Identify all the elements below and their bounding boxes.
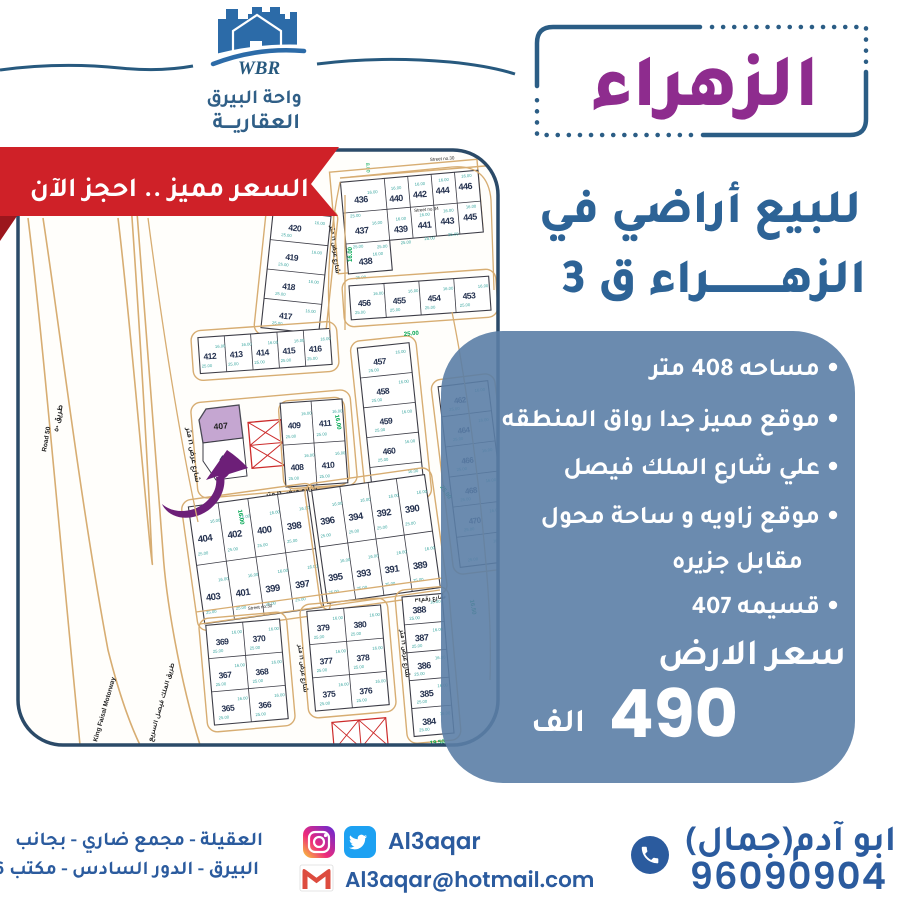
svg-text:16.00: 16.00 [443, 207, 455, 213]
svg-text:16.00: 16.00 [338, 681, 350, 687]
svg-text:25.00: 25.00 [377, 243, 389, 249]
svg-text:25.00: 25.00 [288, 475, 299, 481]
svg-text:16.00: 16.00 [241, 341, 252, 347]
svg-text:411: 411 [319, 418, 333, 429]
svg-text:454: 454 [427, 293, 441, 304]
svg-text:445: 445 [463, 211, 478, 222]
svg-text:404: 404 [197, 532, 214, 545]
svg-text:25.00: 25.00 [350, 213, 362, 219]
svg-text:365: 365 [221, 703, 235, 714]
svg-text:25.00: 25.00 [390, 307, 401, 313]
svg-text:16.00: 16.00 [430, 599, 442, 605]
svg-text:386: 386 [417, 660, 432, 671]
svg-text:25.00: 25.00 [285, 433, 296, 439]
svg-text:446: 446 [458, 181, 473, 192]
svg-text:412: 412 [203, 351, 217, 362]
svg-text:16.00: 16.00 [391, 185, 403, 191]
svg-text:413: 413 [229, 349, 243, 360]
svg-text:443: 443 [440, 215, 455, 226]
svg-text:367: 367 [218, 669, 232, 680]
svg-text:25.00: 25.00 [228, 361, 239, 367]
svg-text:16.00: 16.00 [301, 410, 312, 416]
svg-text:16.00: 16.00 [348, 246, 354, 262]
svg-text:16.00: 16.00 [372, 251, 384, 257]
svg-text:458: 458 [376, 386, 390, 397]
svg-text:391: 391 [384, 563, 401, 576]
svg-text:25.00: 25.00 [356, 697, 368, 703]
svg-text:377: 377 [319, 655, 333, 666]
svg-text:440: 440 [389, 193, 404, 204]
svg-text:25.00: 25.00 [353, 664, 365, 670]
svg-text:16.00: 16.00 [268, 626, 280, 632]
svg-text:25.00: 25.00 [317, 667, 329, 673]
svg-text:436: 436 [354, 194, 369, 205]
svg-text:441: 441 [417, 219, 432, 230]
svg-text:16.00: 16.00 [466, 203, 478, 209]
svg-text:16.00: 16.00 [332, 408, 343, 414]
svg-text:25.00: 25.00 [255, 711, 267, 717]
svg-text:25.00: 25.00 [218, 714, 230, 720]
svg-text:378: 378 [356, 652, 370, 663]
svg-text:16.00: 16.00 [375, 678, 387, 684]
svg-text:385: 385 [419, 688, 434, 699]
svg-text:16.00: 16.00 [443, 286, 454, 292]
svg-text:389: 389 [412, 559, 428, 572]
svg-text:16.00: 16.00 [271, 659, 283, 665]
svg-text:457: 457 [373, 356, 387, 367]
svg-text:400: 400 [257, 524, 273, 537]
svg-text:25.00: 25.00 [419, 727, 431, 733]
svg-text:419: 419 [285, 252, 299, 263]
svg-text:392: 392 [376, 507, 392, 520]
svg-text:WBR: WBR [238, 58, 280, 79]
svg-text:16.00: 16.00 [231, 629, 243, 635]
svg-text:16.00: 16.00 [320, 336, 331, 342]
svg-text:25.00: 25.00 [350, 631, 362, 637]
svg-text:16.00: 16.00 [332, 615, 344, 621]
svg-text:25.00: 25.00 [425, 305, 436, 311]
svg-text:25.00: 25.00 [213, 648, 225, 654]
svg-text:16.00: 16.00 [414, 181, 426, 187]
svg-text:460: 460 [382, 445, 396, 456]
svg-text:459: 459 [379, 415, 393, 426]
svg-text:410: 410 [321, 460, 335, 471]
svg-text:25.00: 25.00 [414, 671, 426, 677]
svg-text:369: 369 [215, 636, 229, 647]
svg-text:16.00: 16.00 [304, 452, 315, 458]
svg-text:16.00: 16.00 [234, 662, 246, 668]
svg-text:417: 417 [279, 310, 293, 321]
svg-text:395: 395 [328, 571, 345, 584]
svg-text:370: 370 [252, 633, 266, 644]
svg-text:25.00: 25.00 [249, 645, 261, 651]
svg-text:16.00: 16.00 [237, 695, 249, 701]
svg-text:25.00: 25.00 [460, 302, 471, 308]
svg-text:387: 387 [414, 632, 429, 643]
svg-text:399: 399 [265, 583, 281, 596]
svg-text:16.00: 16.00 [478, 283, 489, 289]
svg-text:25.00: 25.00 [316, 431, 327, 437]
svg-text:16.00: 16.00 [395, 216, 407, 222]
svg-text:25.00: 25.00 [400, 239, 412, 245]
svg-text:402: 402 [227, 528, 243, 541]
svg-text:16.00: 16.00 [335, 648, 347, 654]
svg-text:16.00: 16.00 [461, 173, 473, 179]
svg-text:442: 442 [413, 189, 428, 200]
svg-text:403: 403 [205, 591, 221, 604]
svg-text:453: 453 [462, 290, 476, 301]
svg-text:418: 418 [282, 281, 296, 292]
svg-text:415: 415 [282, 345, 296, 356]
svg-text:401: 401 [235, 587, 252, 600]
svg-text:16.00: 16.00 [372, 645, 384, 651]
svg-text:456: 456 [358, 298, 372, 309]
svg-text:16.00: 16.00 [215, 343, 226, 349]
svg-text:368: 368 [255, 666, 269, 677]
svg-text:16.00: 16.00 [373, 290, 384, 296]
svg-text:444: 444 [435, 185, 450, 196]
svg-text:438: 438 [358, 256, 373, 267]
svg-text:439: 439 [394, 224, 409, 235]
svg-text:25.00: 25.00 [216, 681, 228, 687]
svg-text:396: 396 [320, 515, 336, 528]
svg-text:8.00: 8.00 [364, 163, 371, 173]
svg-text:16.00: 16.00 [367, 189, 379, 195]
svg-text:416: 416 [308, 343, 322, 354]
svg-text:437: 437 [355, 225, 370, 236]
svg-text:393: 393 [356, 567, 372, 580]
svg-text:366: 366 [258, 699, 272, 710]
svg-text:407: 407 [213, 420, 228, 431]
svg-text:25.00: 25.00 [319, 473, 330, 479]
svg-text:16.00: 16.00 [274, 692, 286, 698]
svg-text:414: 414 [256, 347, 270, 358]
svg-text:408: 408 [290, 462, 304, 473]
svg-text:455: 455 [392, 295, 406, 306]
svg-text:16.00: 16.00 [438, 177, 450, 183]
svg-text:394: 394 [348, 511, 365, 524]
svg-text:25.00: 25.00 [353, 243, 365, 249]
svg-text:388: 388 [412, 604, 427, 615]
svg-text:16.00: 16.00 [335, 450, 346, 456]
svg-text:25.00: 25.00 [252, 678, 264, 684]
svg-text:379: 379 [316, 622, 330, 633]
svg-text:25.00: 25.00 [314, 634, 326, 640]
svg-text:420: 420 [288, 222, 302, 233]
svg-text:16.00: 16.00 [294, 338, 305, 344]
svg-text:25.00: 25.00 [281, 357, 292, 363]
svg-text:16.00: 16.00 [369, 612, 381, 618]
svg-text:25.00: 25.00 [202, 363, 213, 369]
svg-text:376: 376 [359, 685, 373, 696]
svg-text:16.00: 16.00 [419, 212, 431, 218]
svg-text:409: 409 [287, 420, 301, 431]
svg-text:16.00: 16.00 [372, 220, 384, 226]
svg-text:16.00: 16.00 [267, 340, 278, 346]
svg-text:16.00: 16.00 [408, 288, 419, 294]
svg-text:25.00: 25.00 [307, 356, 318, 362]
svg-text:25.00: 25.00 [409, 615, 421, 621]
svg-text:384: 384 [422, 716, 437, 727]
svg-text:390: 390 [404, 503, 420, 516]
svg-text:25.00: 25.00 [319, 700, 331, 706]
svg-text:25.00: 25.00 [254, 359, 265, 365]
svg-text:375: 375 [322, 689, 336, 700]
svg-text:25.00: 25.00 [448, 231, 460, 237]
svg-text:397: 397 [294, 578, 310, 591]
svg-text:25.00: 25.00 [355, 309, 366, 315]
svg-text:398: 398 [286, 520, 302, 533]
svg-text:25.00: 25.00 [417, 699, 429, 705]
svg-text:25.00: 25.00 [412, 643, 424, 649]
svg-text:25.00: 25.00 [424, 235, 436, 241]
svg-text:380: 380 [353, 619, 367, 630]
